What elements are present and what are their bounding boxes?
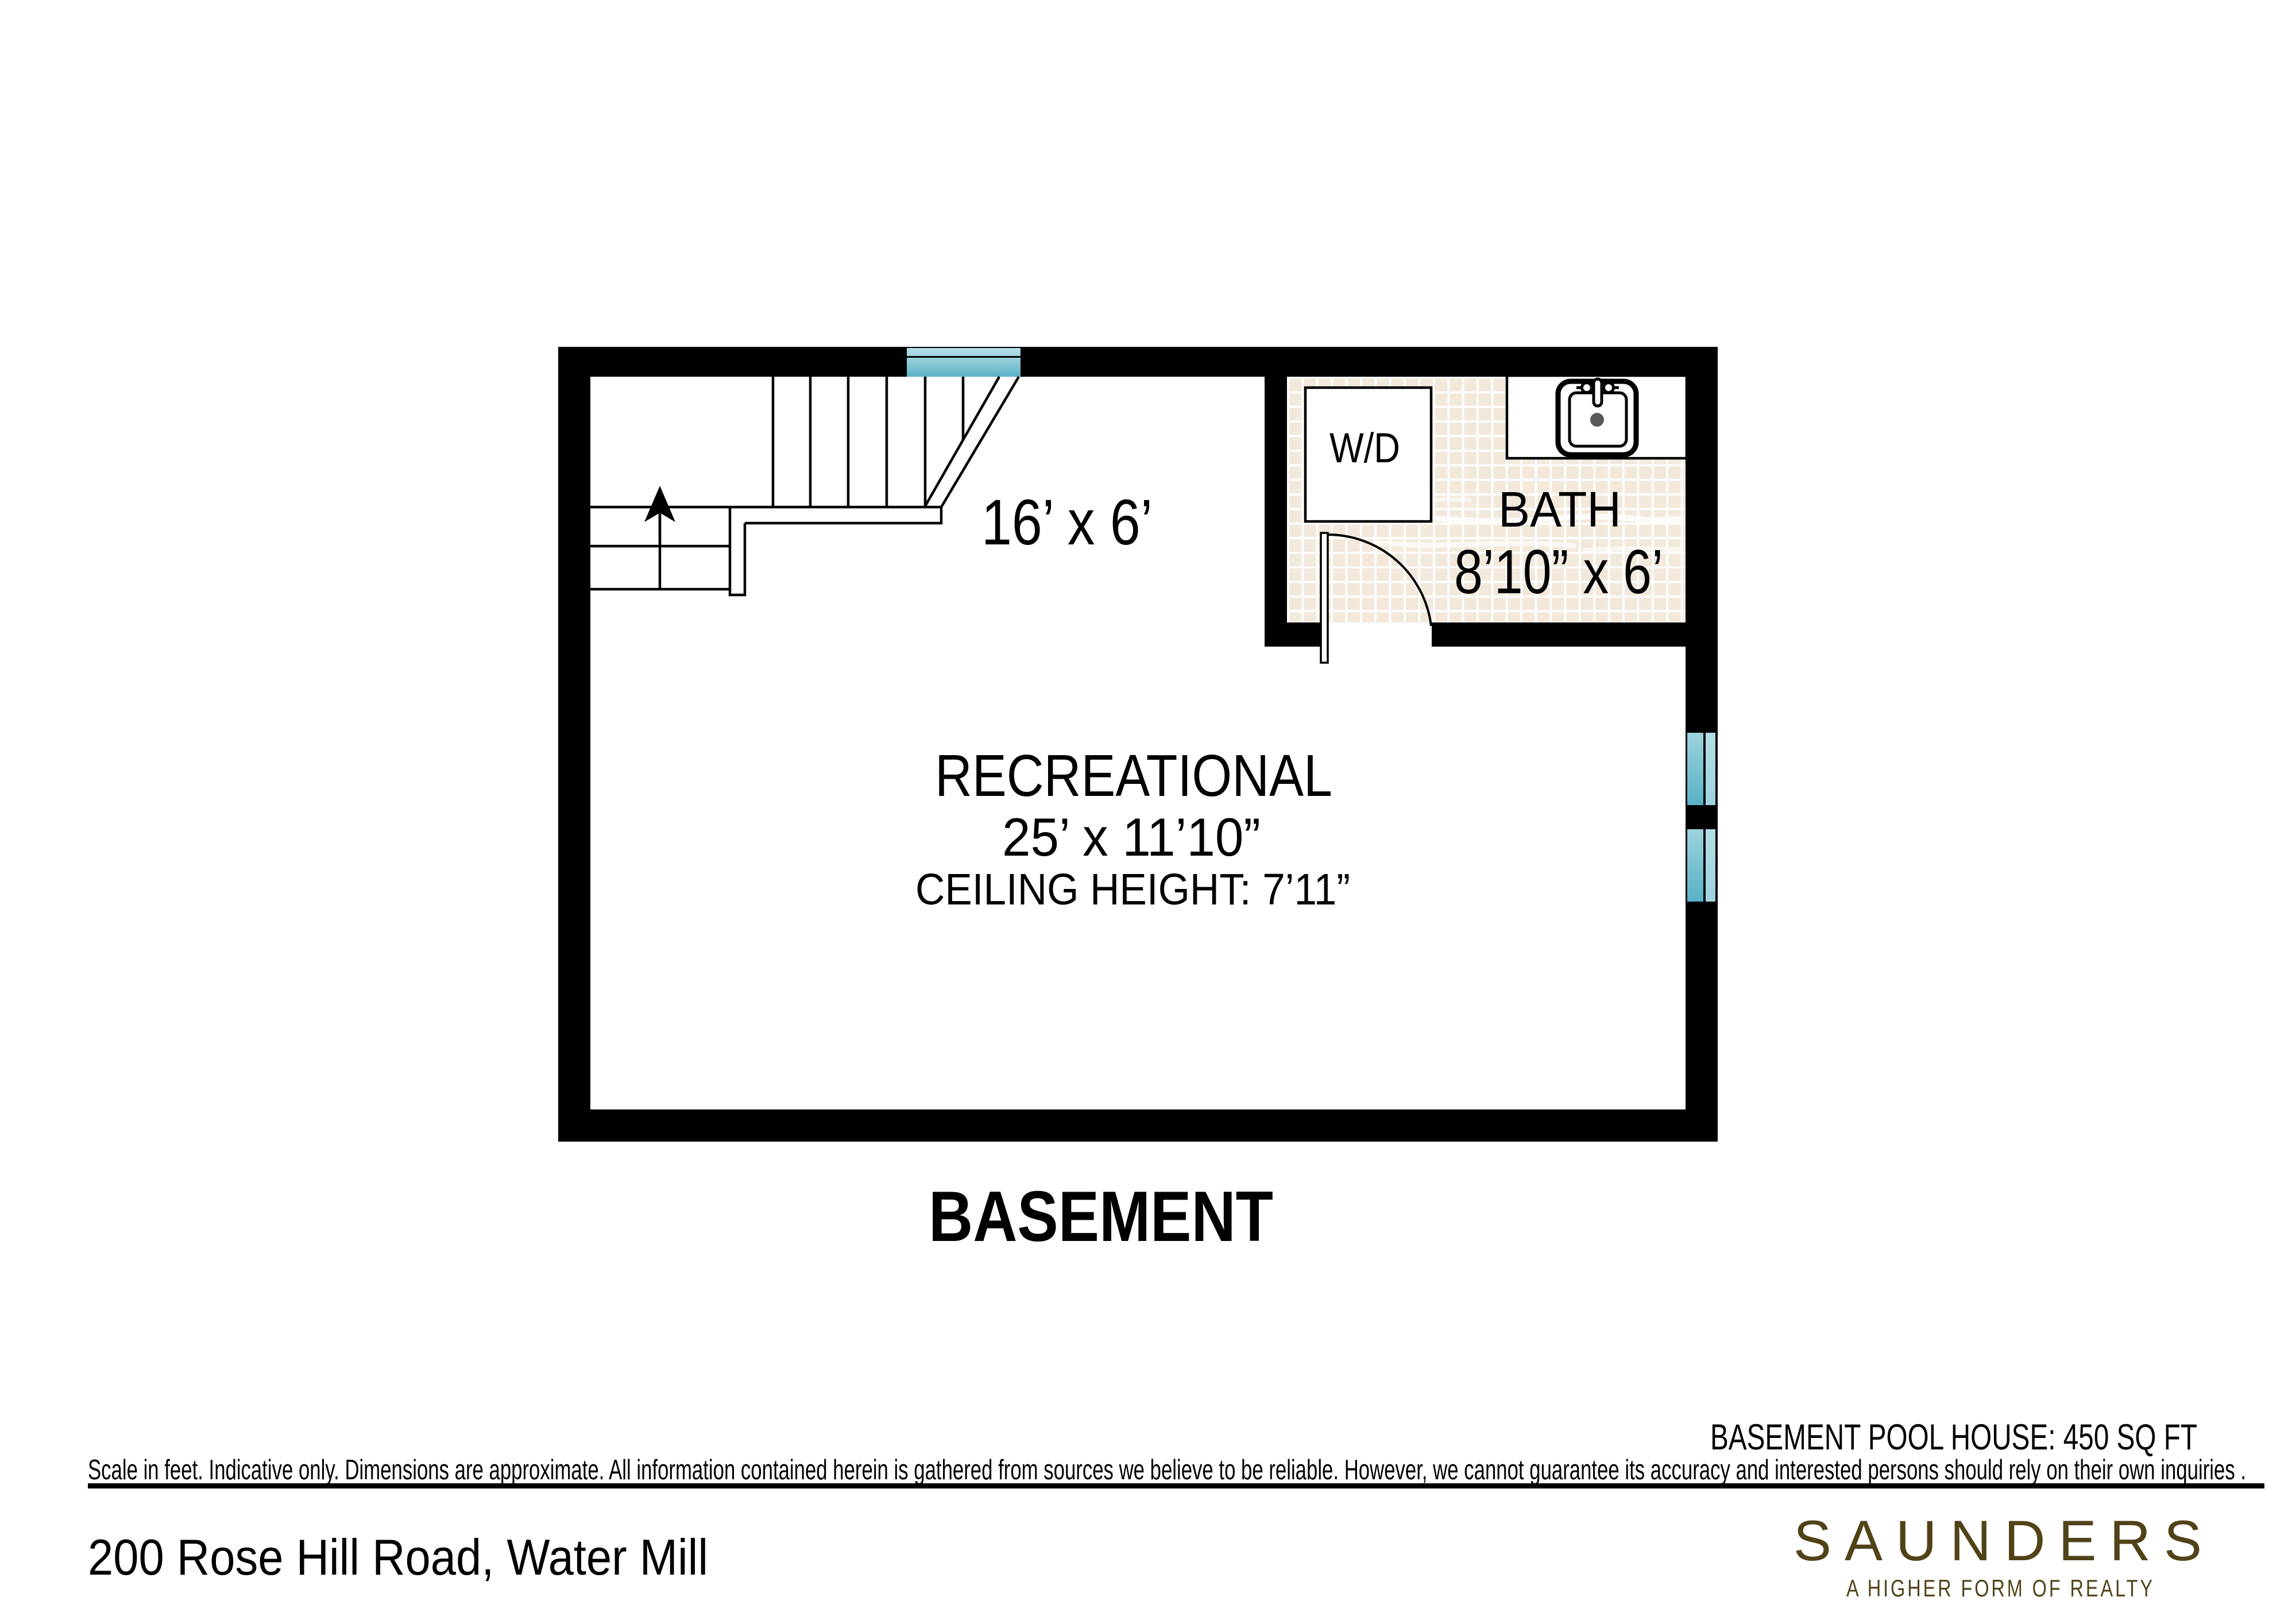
svg-text:RECREATIONAL: RECREATIONAL <box>935 743 1332 809</box>
svg-text:A HIGHER FORM OF REALTY: A HIGHER FORM OF REALTY <box>1846 1575 2155 1602</box>
svg-text:CEILING HEIGHT: 7’11”: CEILING HEIGHT: 7’11” <box>915 865 1350 914</box>
svg-text:BASEMENT POOL HOUSE: 450 SQ FT: BASEMENT POOL HOUSE: 450 SQ FT <box>1710 1417 2197 1457</box>
svg-text:8’10” x 6’: 8’10” x 6’ <box>1454 537 1663 607</box>
svg-text:25’ x 11’10”: 25’ x 11’10” <box>1002 807 1261 867</box>
svg-text:BATH: BATH <box>1498 482 1621 538</box>
svg-text:200 Rose Hill Road, Water Mill: 200 Rose Hill Road, Water Mill <box>88 1529 708 1586</box>
svg-text:Scale in feet. Indicative only: Scale in feet. Indicative only. Dimensio… <box>88 1455 2246 1486</box>
svg-text:16’ x 6’: 16’ x 6’ <box>981 486 1153 558</box>
svg-text:W/D: W/D <box>1329 425 1400 471</box>
svg-text:BASEMENT: BASEMENT <box>929 1177 1273 1256</box>
